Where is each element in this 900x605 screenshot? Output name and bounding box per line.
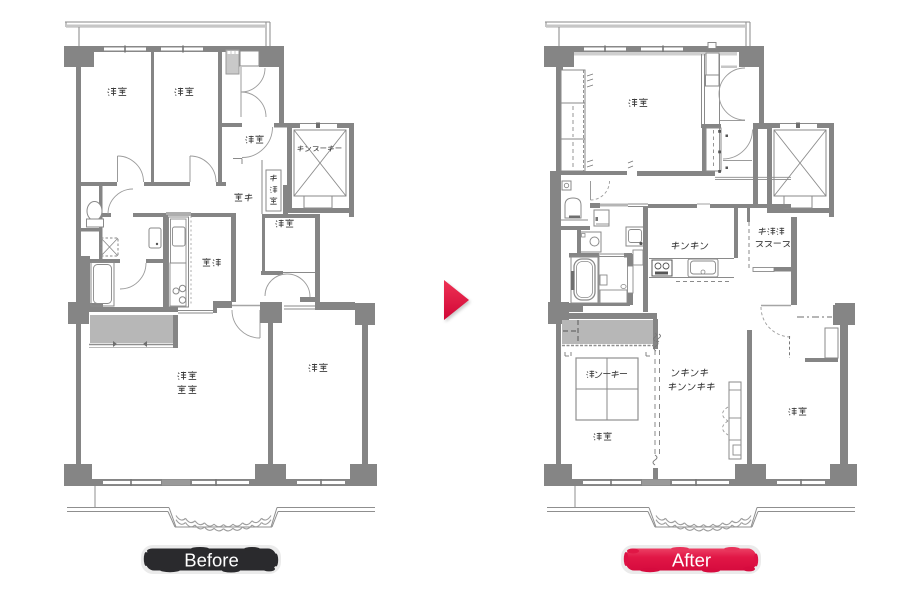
svg-text:After: After [672, 550, 711, 571]
svg-text:Before: Before [184, 550, 239, 571]
